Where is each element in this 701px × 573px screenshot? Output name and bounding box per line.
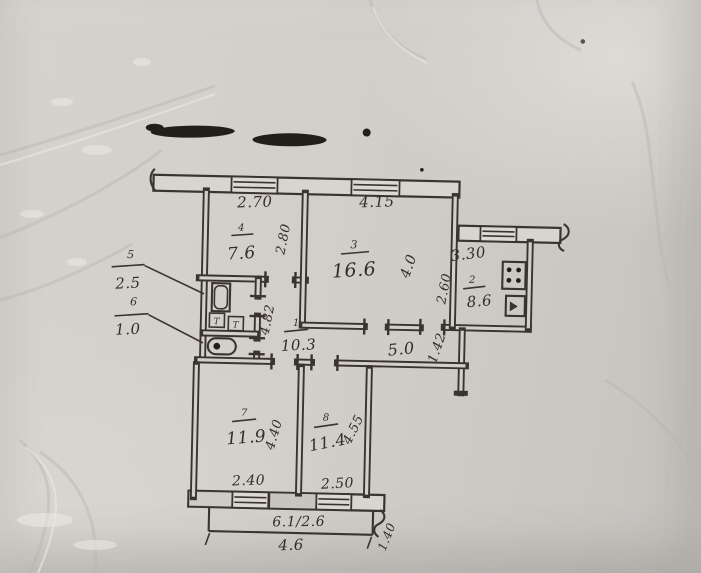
towel-rail-label: Т — [232, 321, 239, 331]
room-number-kitchen: 2 — [468, 275, 476, 286]
dim-living-depth: 4.0 — [397, 252, 420, 281]
dim-bedroom-right-window: 2.50 — [320, 475, 355, 493]
dim-hall-right-width: 1.42 — [425, 331, 449, 365]
stove-icon — [502, 262, 526, 290]
room-area-kitchen: 8.6 — [466, 291, 493, 311]
dim-bedroom-top-depth: 2.80 — [273, 222, 294, 256]
sink-icon — [506, 296, 525, 316]
room-area-bedroom-left: 11.9 — [226, 426, 267, 449]
ink-smudges — [145, 29, 585, 175]
room-number-bedroom-right: 8 — [323, 413, 330, 424]
window-icon — [480, 226, 516, 242]
window-icon — [316, 494, 351, 511]
dim-left-section-depth: 4.82 — [257, 303, 278, 337]
door-openings — [248, 271, 445, 373]
dim-balcony-depth: 1.40 — [375, 521, 398, 553]
floor-plan-photo: Т Т — [0, 0, 701, 573]
bottom-exterior-wall — [188, 491, 384, 511]
dim-hall-length: 5.0 — [387, 338, 416, 360]
window-icon — [232, 492, 268, 509]
towel-rail-icon: Т — [228, 316, 243, 330]
room-area-bedroom-right: 11.4 — [307, 430, 347, 456]
toilet-icon — [208, 338, 236, 355]
towel-rail-icon: Т — [209, 313, 224, 327]
dim-balcony-area: 6.1/2.6 — [272, 514, 325, 531]
room-area-wc: 1.0 — [115, 320, 141, 339]
room-number-bedroom-top: 4 — [237, 223, 245, 234]
bathtub-icon — [212, 283, 231, 311]
room-area-bathroom: 2.5 — [114, 274, 141, 293]
wall-stub-foot — [454, 391, 468, 396]
towel-rail-label: Т — [214, 317, 221, 327]
room-number-hall: 1 — [293, 318, 300, 329]
dim-kitchen-width: 3.30 — [450, 243, 487, 265]
window-icon — [231, 177, 277, 194]
room-number-bathroom: 5 — [127, 248, 135, 261]
room-number-wc: 6 — [130, 295, 138, 308]
room-area-living: 16.6 — [331, 258, 377, 283]
dim-bedroom-left-depth: 4.40 — [263, 418, 286, 453]
room-area-bedroom-top: 7.6 — [227, 243, 257, 265]
dim-bedroom-left-window: 2.40 — [231, 472, 266, 489]
dim-bedroom-top-width: 2.70 — [236, 193, 273, 212]
floorplan-svg: Т Т — [0, 0, 701, 573]
dim-living-width: 4.15 — [358, 192, 395, 211]
room-number-bedroom-left: 7 — [241, 408, 248, 419]
dim-balcony-length: 4.6 — [277, 536, 304, 555]
room-number-living: 3 — [350, 238, 358, 251]
room-area-hall: 10.3 — [280, 335, 316, 355]
